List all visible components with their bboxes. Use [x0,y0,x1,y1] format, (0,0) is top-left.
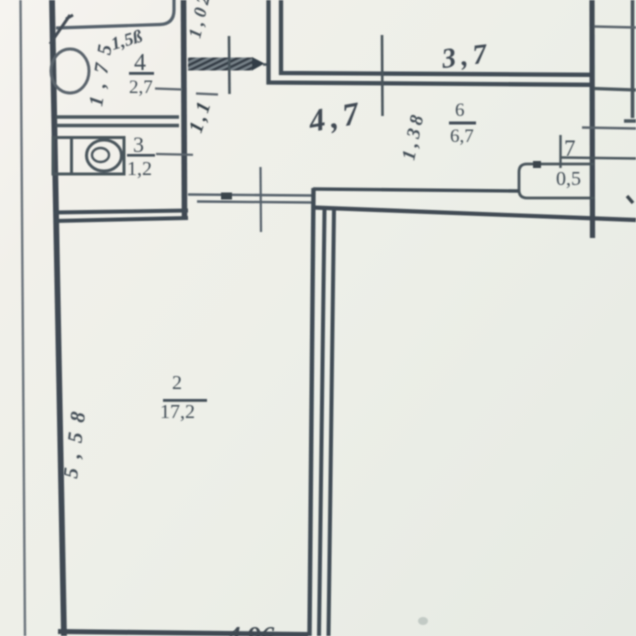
svg-text:6,7: 6,7 [450,126,474,147]
svg-text:3,7: 3,7 [439,38,493,75]
svg-text:2: 2 [172,372,182,394]
svg-text:1,38: 1,38 [398,109,429,162]
svg-text:4,7: 4,7 [305,94,366,139]
svg-text:17,2: 17,2 [160,401,195,423]
svg-text:1,75: 1,75 [85,34,118,108]
svg-text:3: 3 [133,132,144,157]
svg-text:5,58: 5,58 [58,401,91,480]
svg-text:1,1: 1,1 [185,96,216,135]
svg-text:6: 6 [455,100,465,121]
svg-text:1,02: 1,02 [184,0,214,40]
svg-text:0,5: 0,5 [556,168,581,190]
svg-text:2,7: 2,7 [129,77,153,98]
svg-text:7: 7 [564,136,576,161]
svg-text:4,96: 4,96 [226,621,275,636]
svg-text:1,2: 1,2 [127,158,152,180]
